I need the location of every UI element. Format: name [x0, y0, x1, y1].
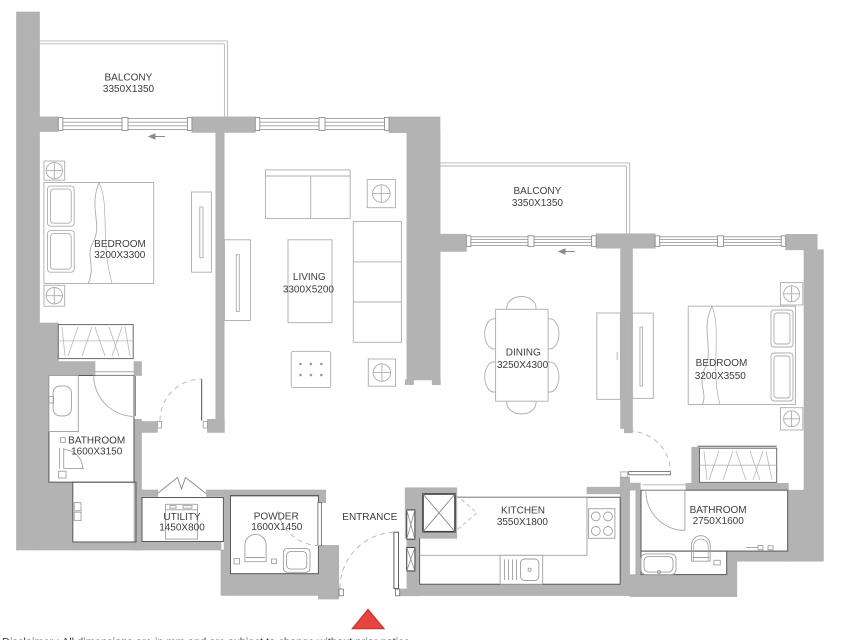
svg-text:BALCONY: BALCONY [105, 73, 153, 84]
svg-text:KITCHEN: KITCHEN [501, 506, 545, 517]
svg-text:BATHROOM: BATHROOM [690, 505, 747, 516]
svg-text:3200X3550: 3200X3550 [695, 371, 747, 382]
svg-text:BALCONY: BALCONY [514, 186, 562, 197]
svg-text:2750X1600: 2750X1600 [693, 516, 745, 527]
svg-text:3300X5200: 3300X5200 [283, 285, 335, 296]
svg-text:BATHROOM: BATHROOM [68, 436, 125, 447]
svg-text:Disclaimer : All dimensions ar: Disclaimer : All dimensions are in mm an… [2, 637, 413, 640]
svg-text:UTILITY: UTILITY [163, 512, 201, 523]
svg-text:3550X1800: 3550X1800 [497, 517, 549, 528]
svg-text:3200X3300: 3200X3300 [94, 250, 146, 261]
svg-text:3350X1350: 3350X1350 [512, 198, 564, 209]
svg-text:1600X1450: 1600X1450 [251, 522, 303, 533]
svg-text:3250X4300: 3250X4300 [497, 360, 549, 371]
svg-text:3350X1350: 3350X1350 [103, 84, 155, 95]
svg-text:1450X800: 1450X800 [159, 523, 205, 534]
svg-text:POWDER: POWDER [254, 512, 299, 523]
svg-text:BEDROOM: BEDROOM [94, 239, 146, 250]
svg-text:1600X3150: 1600X3150 [71, 447, 123, 458]
svg-text:BEDROOM: BEDROOM [696, 358, 748, 369]
svg-text:DINING: DINING [506, 348, 541, 359]
svg-text:LIVING: LIVING [293, 272, 326, 283]
svg-text:ENTRANCE: ENTRANCE [342, 512, 397, 523]
